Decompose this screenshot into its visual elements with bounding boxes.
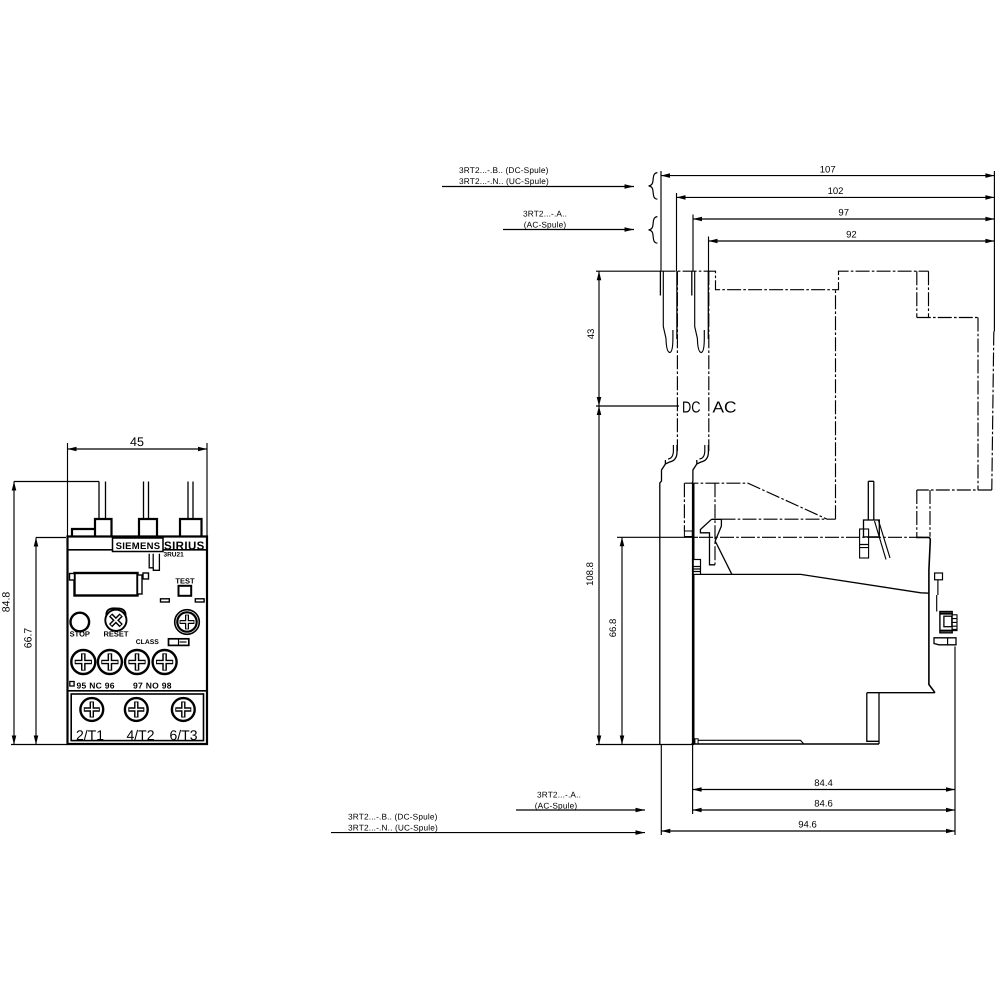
- svg-text:STOP: STOP: [70, 630, 90, 639]
- svg-text:(AC-Spule): (AC-Spule): [524, 220, 567, 230]
- svg-text:AC: AC: [713, 400, 737, 417]
- svg-text:3RT2...-.A..: 3RT2...-.A..: [523, 209, 567, 219]
- svg-text:66.8: 66.8: [608, 619, 619, 638]
- svg-text:4/T2: 4/T2: [126, 727, 154, 743]
- svg-text:97: 97: [838, 208, 849, 219]
- svg-text:3RT2...-.N.. (UC-Spule): 3RT2...-.N.. (UC-Spule): [348, 823, 438, 833]
- svg-text:TEST: TEST: [175, 577, 195, 586]
- svg-text:3RT2...-.B.. (DC-Spule): 3RT2...-.B.. (DC-Spule): [459, 165, 549, 175]
- svg-text:RESET: RESET: [103, 630, 128, 639]
- svg-text:SIEMENS: SIEMENS: [116, 541, 161, 552]
- svg-text:3RT2...-.B.. (DC-Spule): 3RT2...-.B.. (DC-Spule): [348, 812, 438, 822]
- svg-text:84.6: 84.6: [814, 799, 833, 810]
- svg-text:3RT2...-.A..: 3RT2...-.A..: [537, 789, 581, 799]
- svg-text:107: 107: [820, 164, 836, 175]
- svg-text:3RT2...-.N.. (UC-Spule): 3RT2...-.N.. (UC-Spule): [459, 176, 549, 186]
- svg-text:(AC-Spule): (AC-Spule): [535, 800, 578, 810]
- svg-text:2/T1: 2/T1: [76, 727, 104, 743]
- svg-text:108.8: 108.8: [585, 562, 596, 586]
- svg-text:84.8: 84.8: [1, 592, 13, 613]
- svg-text:84.4: 84.4: [814, 778, 833, 789]
- svg-text:94.6: 94.6: [798, 820, 817, 831]
- svg-text:6/T3: 6/T3: [169, 727, 197, 743]
- svg-text:95 NC 96: 95 NC 96: [77, 681, 115, 691]
- svg-text:45: 45: [130, 435, 144, 449]
- svg-text:102: 102: [828, 186, 844, 197]
- svg-text:92: 92: [846, 230, 857, 241]
- svg-text:97 NO 98: 97 NO 98: [133, 681, 172, 691]
- svg-text:43: 43: [586, 329, 597, 340]
- svg-text:66.7: 66.7: [23, 628, 35, 649]
- svg-text:3RU21: 3RU21: [164, 552, 185, 559]
- svg-text:CLASS: CLASS: [136, 639, 160, 646]
- svg-text:DC: DC: [682, 400, 701, 417]
